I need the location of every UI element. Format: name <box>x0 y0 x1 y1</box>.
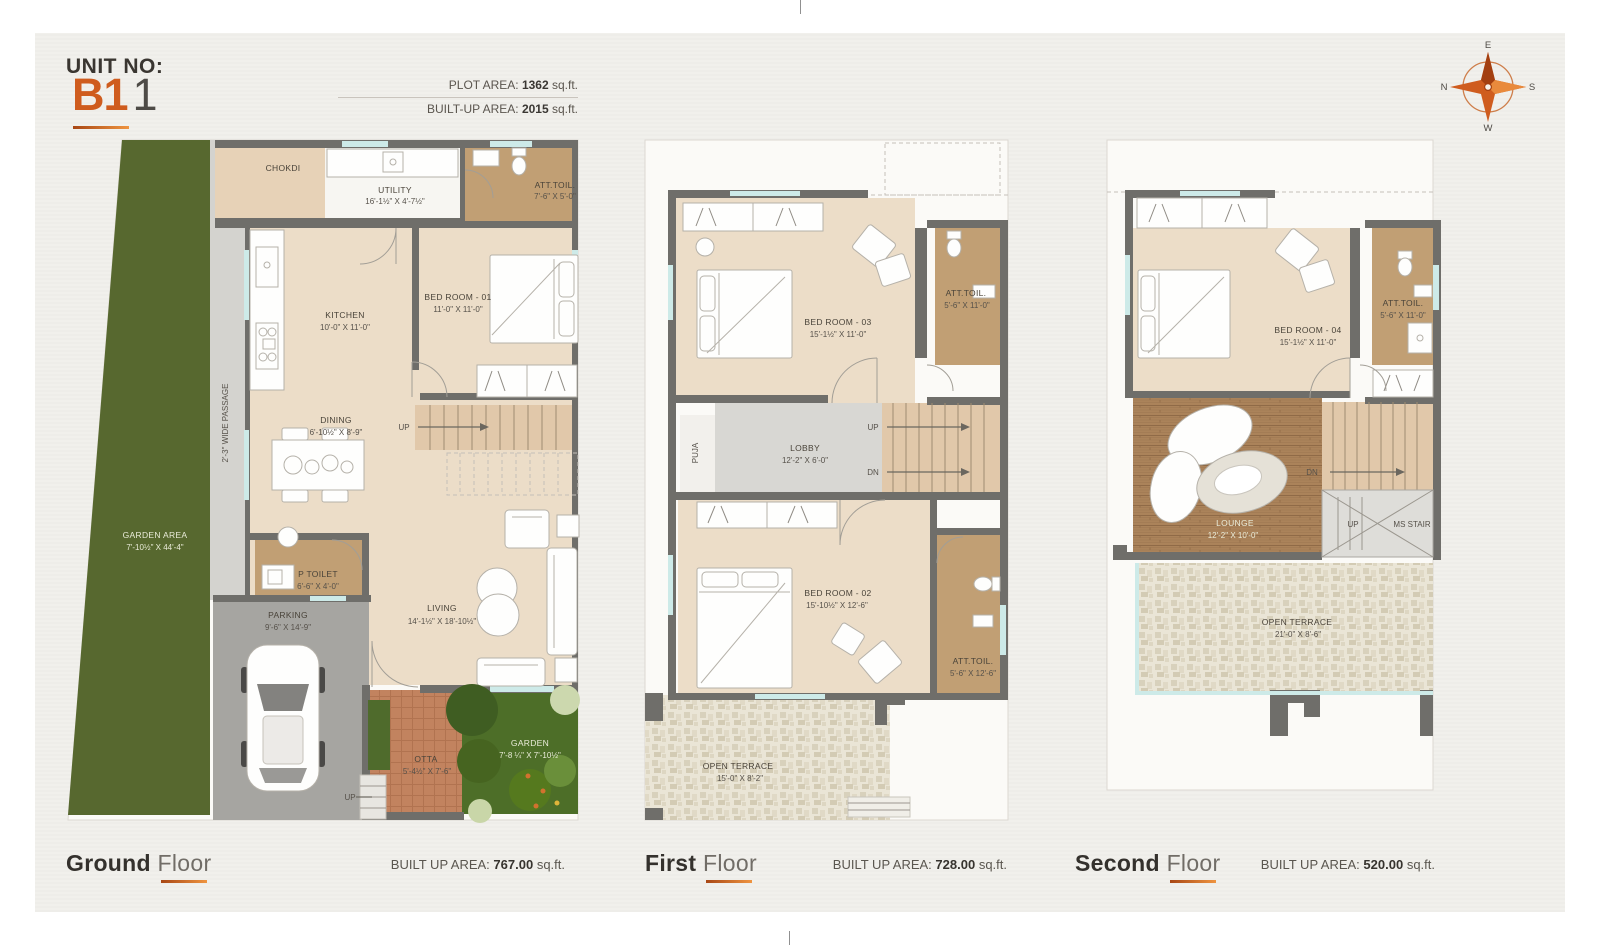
parking-label: PARKING <box>268 610 308 620</box>
second-area-label: BUILT UP AREA: <box>1261 857 1360 872</box>
compass-south-label: S <box>1529 82 1535 93</box>
bedroom-01-dims: 11'-0" X 11'-0" <box>433 305 483 314</box>
bedroom-03-dims: 15'-1½" X 11'-0" <box>810 330 867 339</box>
bed-icon <box>697 270 792 358</box>
plot-area-unit: sq.ft. <box>552 78 578 92</box>
builtup-area-line: BUILT-UP AREA: 2015 sq.ft. <box>338 100 578 118</box>
first-floor-plan: BED ROOM - 03 15'-1½" X 11'-0" ATT.TOIL.… <box>635 135 1020 825</box>
planter <box>368 700 390 770</box>
first-floor-area: BUILT UP AREA: 728.00 sq.ft. <box>833 857 1007 872</box>
floorplan-sheet: UNIT NO: B11 PLOT AREA: 1362 sq.ft. BUIL… <box>0 0 1600 945</box>
otta-dims: 5'-4½" X 7'-6" <box>403 767 451 776</box>
room-chokdi <box>215 148 325 222</box>
kitchen-counter <box>250 230 284 390</box>
car-icon <box>241 645 325 791</box>
bed-icon <box>490 255 578 343</box>
ground-floor-title: Ground Floor <box>66 850 211 877</box>
bedroom-01-label: BED ROOM - 01 <box>424 292 491 302</box>
ground-floor-title-light: Floor <box>158 850 212 876</box>
bedroom-02-dims: 15'-10½" X 12'-6" <box>806 601 868 610</box>
open-terrace-dims: 15'-0" X 8'-2" <box>717 774 763 783</box>
utility-counter <box>327 149 458 177</box>
plot-area-label: PLOT AREA: <box>449 78 519 92</box>
stairs-up-label: UP <box>398 423 409 432</box>
bed-icon <box>697 568 792 688</box>
bedroom-04-label: BED ROOM - 04 <box>1274 325 1341 335</box>
living-label: LIVING <box>427 603 457 613</box>
parking-dims: 9'-6" X 14'-9" <box>265 623 311 632</box>
garden-area-label: GARDEN AREA <box>123 530 188 540</box>
ground-area-unit: sq.ft. <box>537 857 565 872</box>
open-terrace-label: OPEN TERRACE <box>1262 617 1333 627</box>
stairs-dn-label: DN <box>867 468 879 477</box>
wardrobe-icon <box>683 203 823 231</box>
bedroom-04-dims: 15'-1½" X 11'-0" <box>1280 338 1337 347</box>
plot-area-line: PLOT AREA: 1362 sq.ft. <box>338 76 578 94</box>
compass-west-label: W <box>1484 123 1493 132</box>
builtup-area-value: 2015 <box>522 102 549 116</box>
fold-mark-top <box>800 0 801 14</box>
compass-rose-icon: E N S W <box>1438 40 1538 132</box>
att-toilet-bottom-label: ATT.TOIL. <box>953 656 994 666</box>
second-area-unit: sq.ft. <box>1407 857 1435 872</box>
ground-floor-title-bold: Ground <box>66 850 151 876</box>
bedroom-02-label: BED ROOM - 02 <box>804 588 871 598</box>
title-underline <box>1170 880 1216 883</box>
compass-east-label: E <box>1485 40 1491 51</box>
att-toilet-dims: 7'-6" X 5'-0" <box>534 192 576 201</box>
unit-number-logo: B11 <box>72 72 158 117</box>
open-terrace-dims: 21'-0" X 8'-6" <box>1275 630 1321 639</box>
fold-mark-bottom <box>789 931 790 945</box>
plot-area-value: 1362 <box>522 78 549 92</box>
utility-label: UTILITY <box>378 185 412 195</box>
logo-underline <box>73 126 129 129</box>
living-dims: 14'-1½" X 18'-10½" <box>408 617 476 626</box>
lobby-label: LOBBY <box>790 443 820 453</box>
area-summary: PLOT AREA: 1362 sq.ft. BUILT-UP AREA: 20… <box>338 76 578 118</box>
first-floor-title: First Floor <box>645 850 757 877</box>
dining-dims: 6'-10½" X 8'-9" <box>310 428 363 437</box>
unit-number-secondary: 1 <box>133 69 158 120</box>
wardrobe-icon <box>697 502 837 528</box>
kitchen-dims: 10'-0" X 11'-0" <box>320 323 370 332</box>
chokdi-label: CHOKDI <box>266 163 301 173</box>
ground-area-value: 767.00 <box>493 857 533 872</box>
title-underline <box>706 880 752 883</box>
compass-north-label: N <box>1441 82 1448 93</box>
ms-stair-label: MS STAIR <box>1393 520 1430 529</box>
otta-label: OTTA <box>414 754 437 764</box>
ground-floor-plan: GARDEN AREA 7'-10½" X 44'-4" 2'-3" WIDE … <box>60 135 585 825</box>
staircase <box>1322 402 1433 490</box>
garden-dims: 7'-8 ¼" X 7'-10½" <box>499 751 561 760</box>
puja-label: PUJA <box>691 442 700 463</box>
bed-icon <box>1138 270 1230 358</box>
att-toilet-label: ATT.TOIL. <box>1383 298 1424 308</box>
lounge-dims: 12'-2" X 10'-0" <box>1208 531 1259 540</box>
att-toilet-bottom-dims: 5'-6" X 12'-6" <box>950 669 996 678</box>
unit-number-primary: B1 <box>72 69 128 120</box>
first-area-label: BUILT UP AREA: <box>833 857 932 872</box>
ground-area-label: BUILT UP AREA: <box>391 857 490 872</box>
p-toilet-dims: 6'-6" X 4'-0" <box>297 582 339 591</box>
att-toilet-dims: 5'-6" X 11'-0" <box>1380 311 1426 320</box>
second-floor-title-bold: Second <box>1075 850 1160 876</box>
second-floor-title: Second Floor <box>1075 850 1220 877</box>
first-floor-title-bold: First <box>645 850 696 876</box>
second-area-value: 520.00 <box>1363 857 1403 872</box>
terrace-steps <box>848 797 910 817</box>
builtup-area-unit: sq.ft. <box>552 102 578 116</box>
entry-up-label: UP <box>344 793 355 802</box>
second-floor-plan: BED ROOM - 04 15'-1½" X 11'-0" ATT.TOIL.… <box>1090 135 1450 825</box>
first-area-unit: sq.ft. <box>979 857 1007 872</box>
entry-steps <box>356 775 386 819</box>
bedroom-03-label: BED ROOM - 03 <box>804 317 871 327</box>
area-divider <box>338 97 578 98</box>
ground-floor-area: BUILT UP AREA: 767.00 sq.ft. <box>391 857 565 872</box>
dining-label: DINING <box>320 415 352 425</box>
room-open-terrace <box>1135 563 1433 695</box>
second-floor-title-light: Floor <box>1167 850 1221 876</box>
second-floor-area: BUILT UP AREA: 520.00 sq.ft. <box>1261 857 1435 872</box>
kitchen-label: KITCHEN <box>325 310 364 320</box>
stairs-up-label: UP <box>1347 520 1358 529</box>
passage-label: 2'-3" WIDE PASSAGE <box>221 384 230 463</box>
staircase <box>882 403 1000 492</box>
lounge-label: LOUNGE <box>1216 518 1254 528</box>
first-area-value: 728.00 <box>935 857 975 872</box>
stairs-dn-label: DN <box>1306 468 1318 477</box>
att-toilet-top-label: ATT.TOIL. <box>946 288 987 298</box>
stairs-up-label: UP <box>867 423 878 432</box>
att-toilet-top-dims: 5'-6" X 11'-0" <box>944 301 990 310</box>
wardrobe-icon <box>477 365 577 397</box>
room-garden-area <box>68 140 210 815</box>
side-table <box>696 238 714 256</box>
att-toilet-label: ATT.TOIL. <box>535 180 576 190</box>
title-underline <box>161 880 207 883</box>
lobby-dims: 12'-2" X 6'-0" <box>782 456 828 465</box>
open-terrace-label: OPEN TERRACE <box>703 761 774 771</box>
first-floor-title-light: Floor <box>703 850 757 876</box>
p-toilet-label: P TOILET <box>298 569 338 579</box>
utility-dims: 16'-1½" X 4'-7½" <box>365 197 425 206</box>
garden-area-dims: 7'-10½" X 44'-4" <box>126 543 183 552</box>
builtup-area-label: BUILT-UP AREA: <box>427 102 519 116</box>
garden-label: GARDEN <box>511 738 549 748</box>
